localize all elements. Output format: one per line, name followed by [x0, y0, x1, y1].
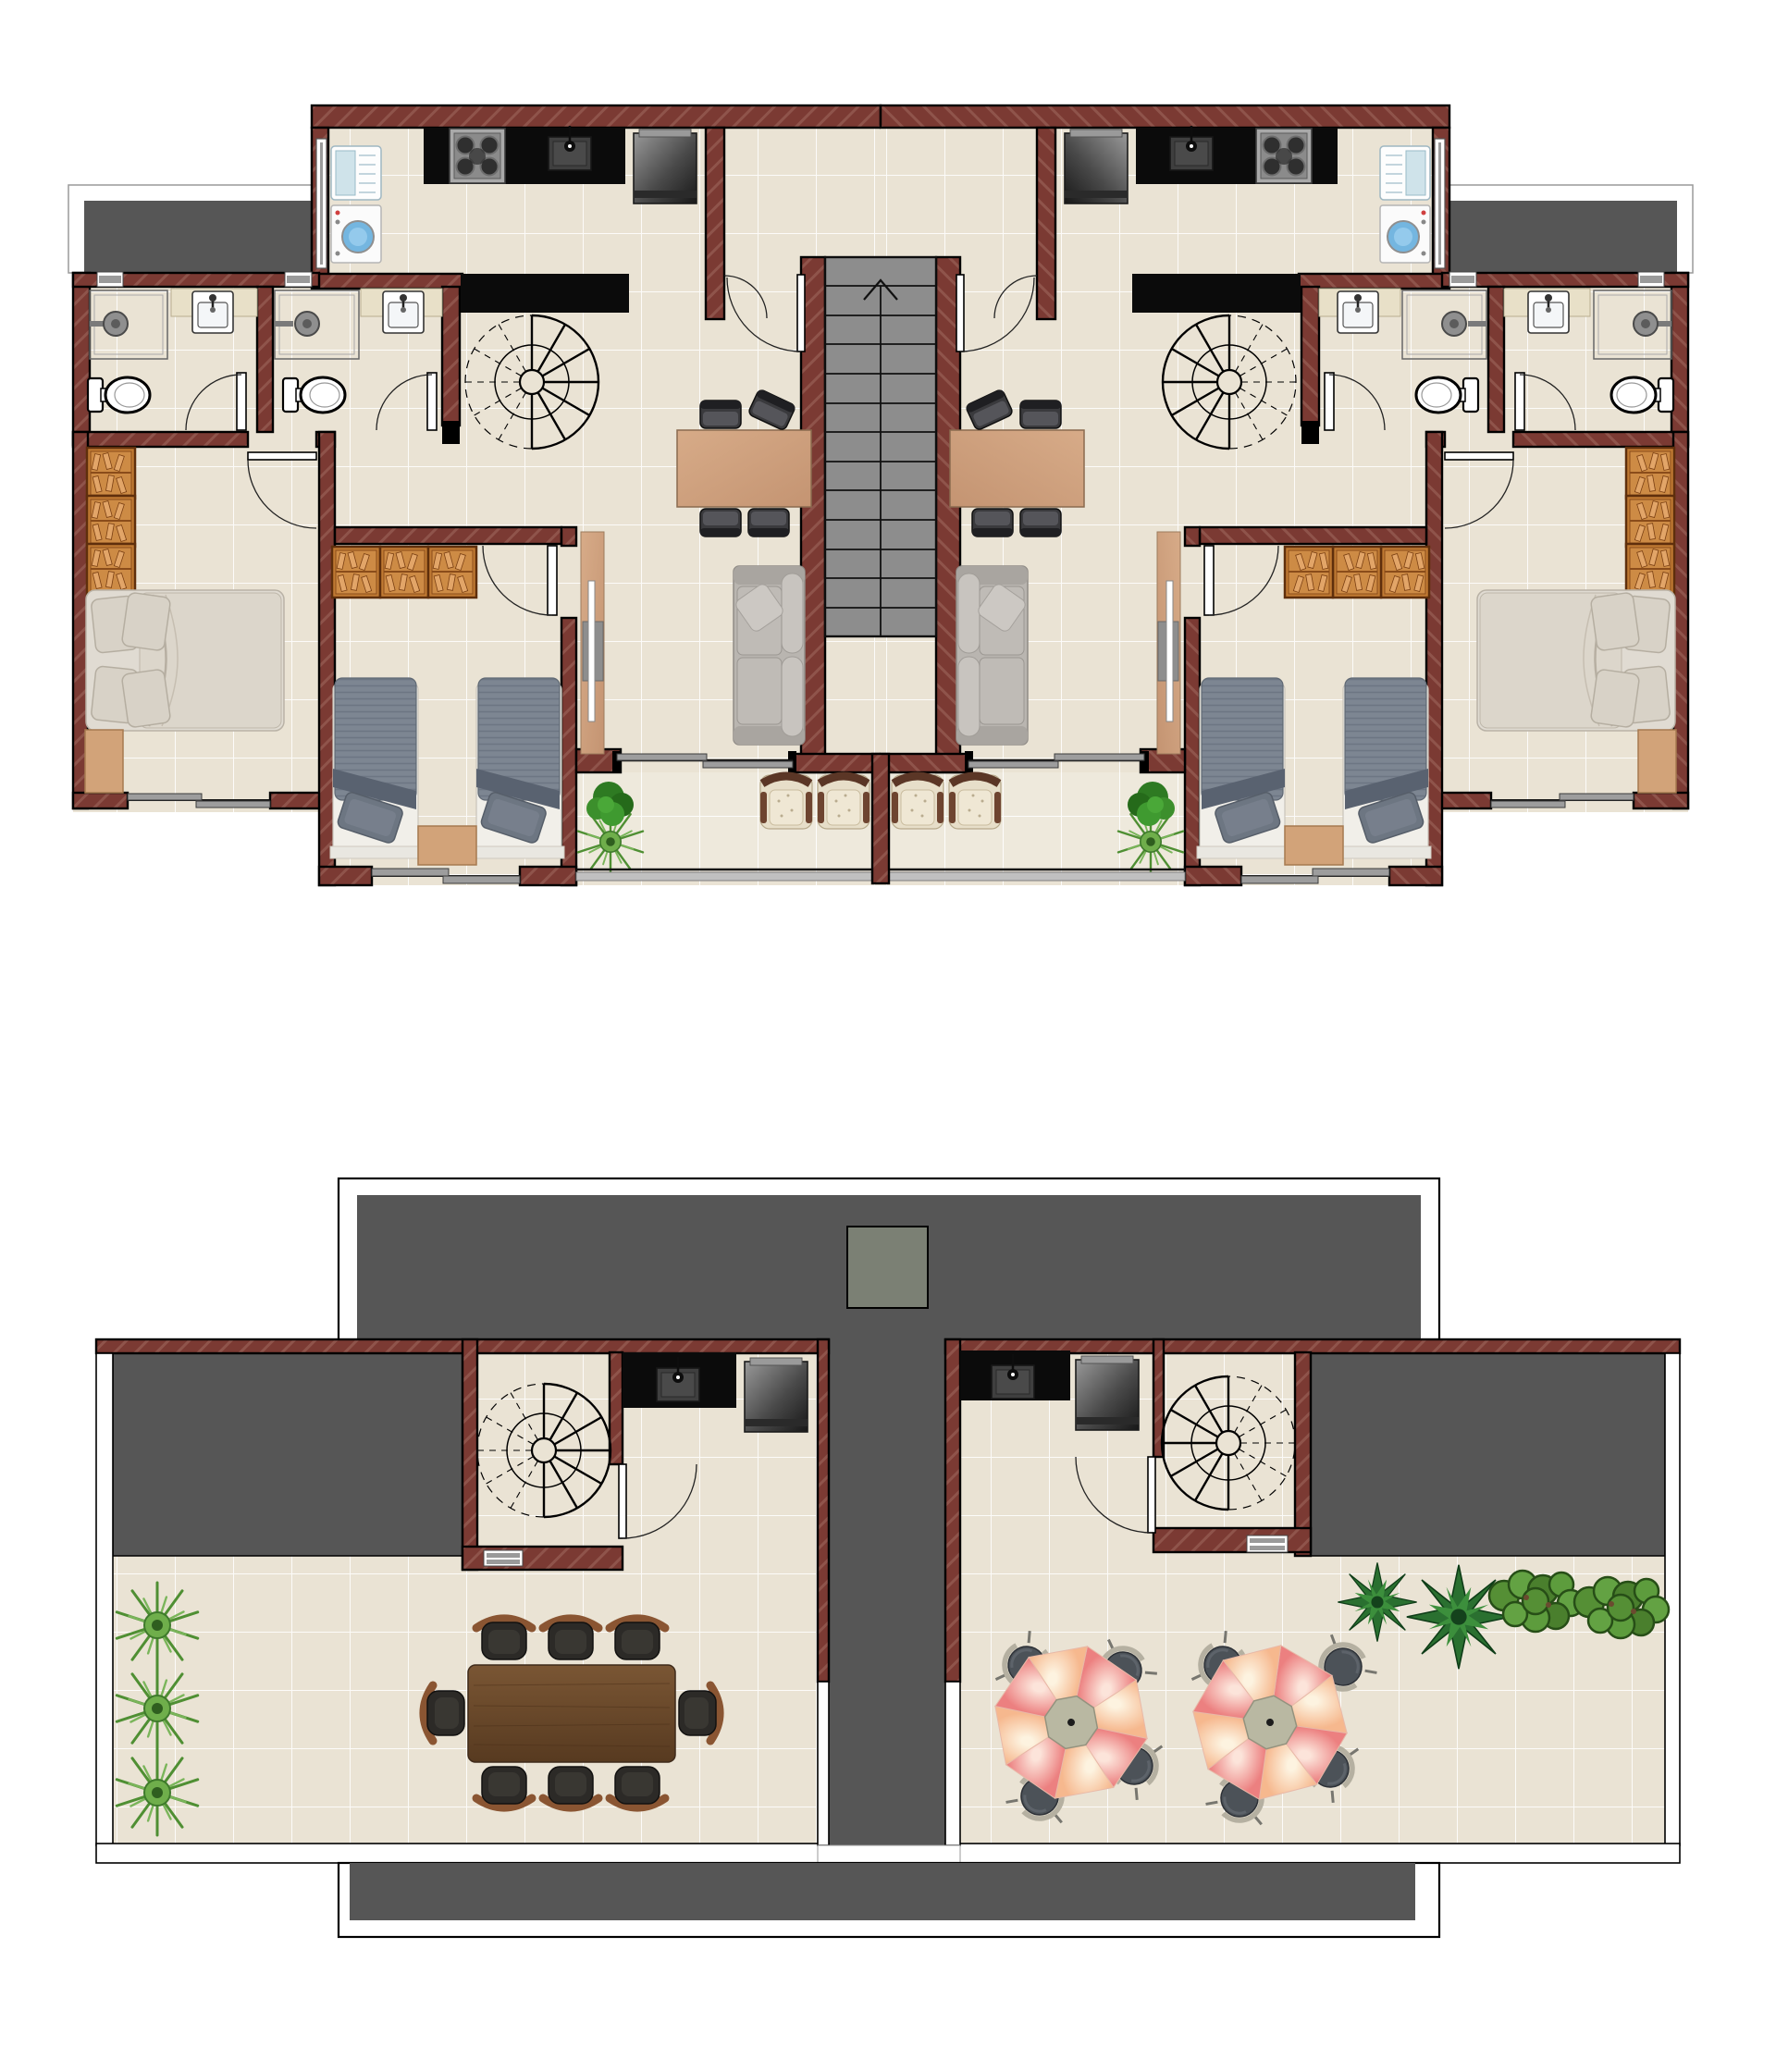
roof-over-bedrooms: [1311, 1352, 1665, 1556]
barbecue-icon: [1076, 1356, 1139, 1430]
apartment-left: [68, 105, 881, 885]
core-parapet-gap: [818, 1845, 960, 1863]
barbecue-icon: [745, 1358, 808, 1432]
elevator-overrun: [847, 1227, 928, 1308]
balcony-divider-wall: [872, 754, 889, 883]
central-staircase: [825, 257, 936, 636]
lower-roof-slab: [339, 1863, 1439, 1937]
roof-dining-table: [468, 1665, 675, 1762]
apartment-right: [881, 105, 1693, 885]
roof-unit-right: [945, 1339, 1680, 1863]
roof-over-bedrooms: [113, 1352, 462, 1556]
upper-roof-slab: [339, 1178, 1439, 1352]
roof-unit-left: [96, 1339, 829, 1863]
upper-floor-plan: [68, 105, 1693, 885]
palm-plant-icon: [1338, 1562, 1416, 1641]
stair-room-window: [484, 1550, 523, 1566]
floor-plan-drawing: [0, 0, 1776, 2072]
stair-room-window: [1247, 1535, 1288, 1552]
floor-plan-sheet: [0, 0, 1776, 2072]
palm-plant-icon: [1407, 1565, 1511, 1669]
core-roof-strip: [829, 1352, 945, 1846]
